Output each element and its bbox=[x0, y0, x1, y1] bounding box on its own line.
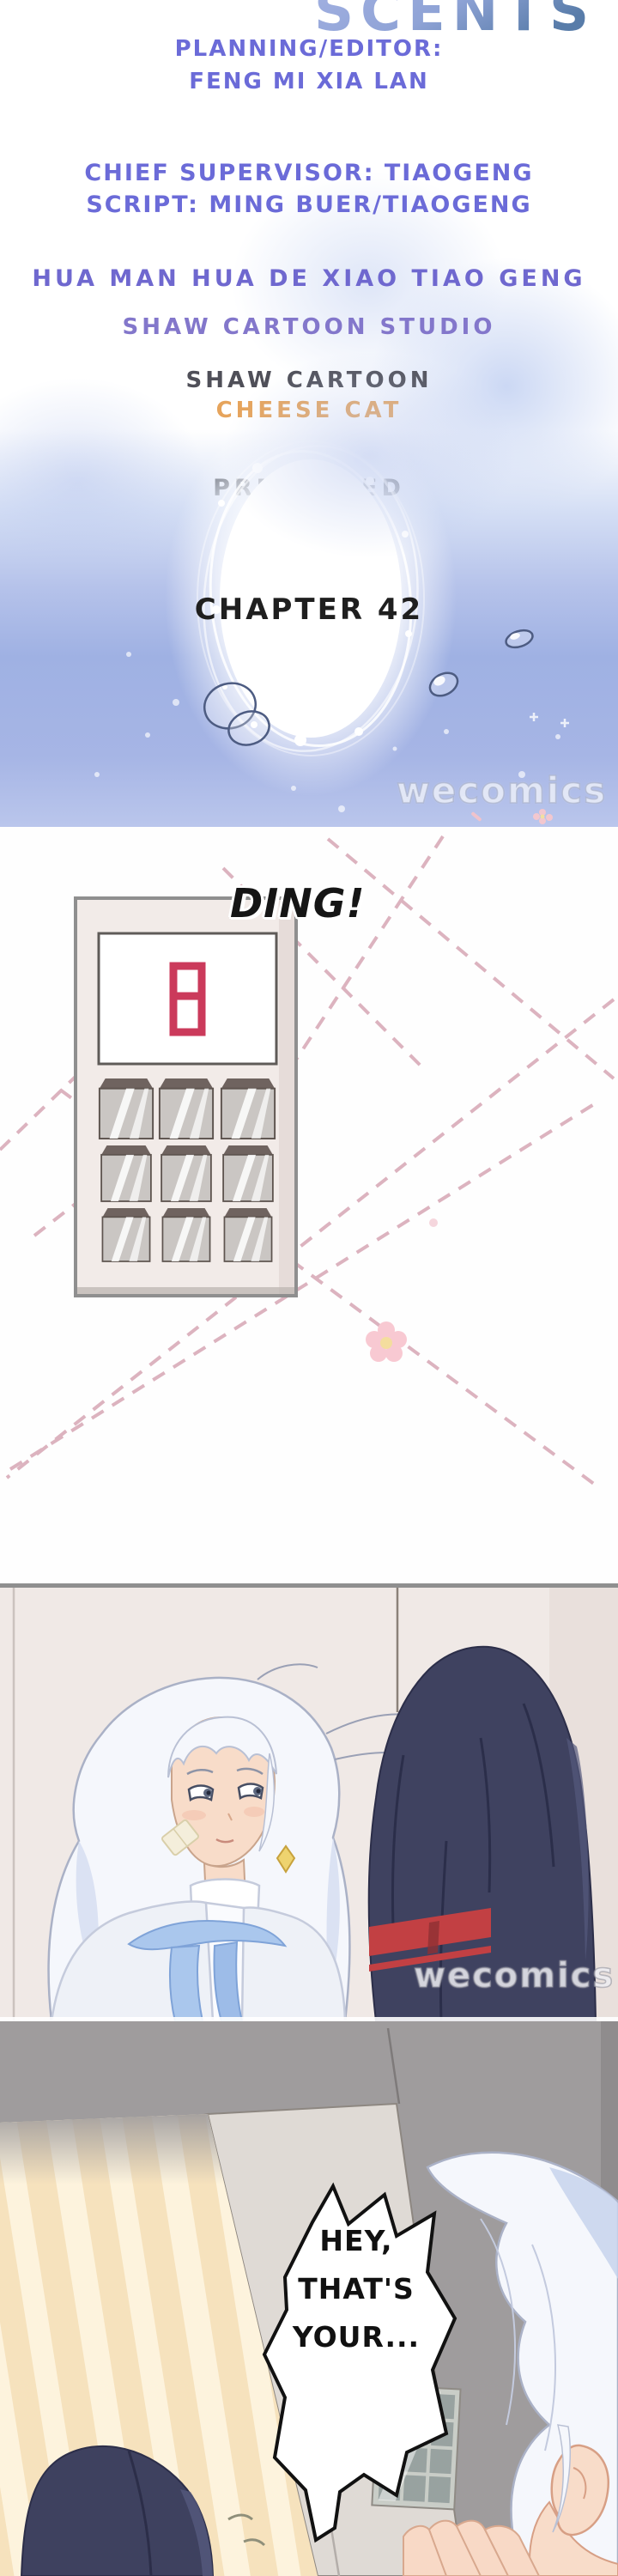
elevator-interior-panel: wecomics bbox=[0, 1583, 618, 2021]
credit-line: CHIEF SUPERVISOR: TIAOGENG bbox=[0, 160, 618, 186]
watermark: wecomics bbox=[397, 769, 607, 811]
credit-line: SHAW CARTOON bbox=[0, 368, 618, 393]
petal-dot bbox=[429, 1218, 438, 1227]
plus-sparkles bbox=[530, 713, 569, 727]
elevator-panel-scene: DING! bbox=[0, 827, 618, 1583]
speech-line: THAT'S bbox=[283, 2265, 429, 2313]
hallway-panel: HEY, THAT'S YOUR... bbox=[0, 2021, 618, 2576]
credits-section: SCENTS PLANNING/EDITOR: FENG MI XIA LAN … bbox=[0, 0, 618, 429]
chapter-splash-section: CHAPTER 42 wecomics bbox=[0, 429, 618, 827]
elevator-panel-art bbox=[0, 827, 618, 1583]
credit-line: FENG MI XIA LAN bbox=[0, 69, 618, 94]
speech-line: YOUR... bbox=[283, 2313, 429, 2361]
panel-border bbox=[0, 1583, 618, 1588]
flower-icon bbox=[366, 1321, 407, 1362]
ding-sfx: DING! bbox=[230, 880, 366, 927]
comic-page: SCENTS PLANNING/EDITOR: FENG MI XIA LAN … bbox=[0, 0, 618, 2576]
credit-line: SCRIPT: MING BUER/TIAOGENG bbox=[0, 191, 618, 218]
elevator-button-panel bbox=[76, 898, 296, 1296]
credit-line: SHAW CARTOON STUDIO bbox=[0, 314, 618, 340]
series-title-text: SCENTS bbox=[314, 0, 596, 36]
speech-text: HEY, THAT'S YOUR... bbox=[283, 2217, 429, 2361]
chapter-title: CHAPTER 42 bbox=[0, 592, 618, 627]
chapter-splash-art bbox=[0, 429, 618, 827]
elevator-buttons bbox=[100, 1078, 275, 1261]
speech-line: HEY, bbox=[283, 2217, 429, 2265]
credit-line: HUA MAN HUA DE XIAO TIAO GENG bbox=[0, 265, 618, 292]
credit-line: PLANNING/EDITOR: bbox=[0, 36, 618, 62]
series-title: SCENTS bbox=[0, 0, 618, 36]
watermark: wecomics bbox=[414, 1956, 615, 1996]
credit-line: CHEESE CAT bbox=[0, 398, 618, 423]
